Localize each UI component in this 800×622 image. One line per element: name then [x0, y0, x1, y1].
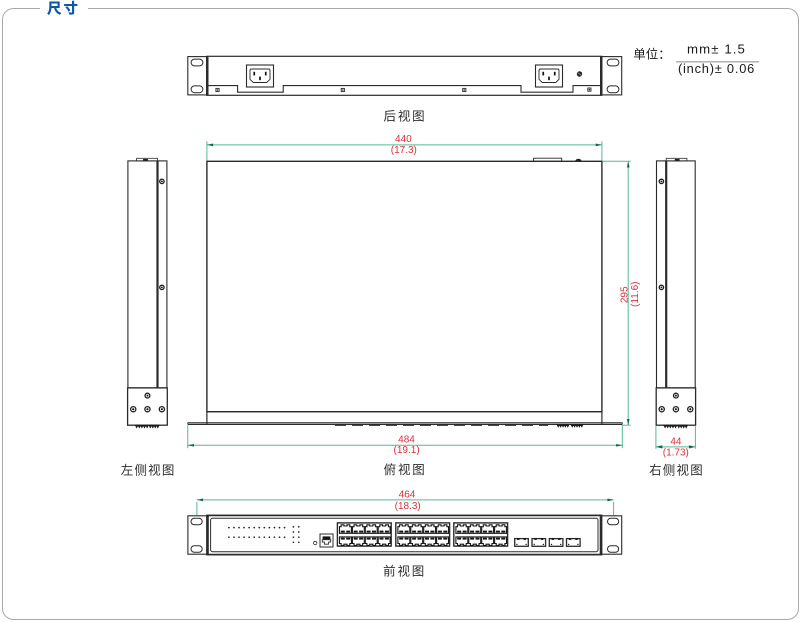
svg-text:尺寸: 尺寸 [48, 0, 81, 16]
svg-text:44: 44 [670, 437, 682, 448]
svg-text:(17.3): (17.3) [391, 145, 417, 156]
svg-text:左侧视图: 左侧视图 [121, 463, 176, 478]
svg-text:单位：: 单位： [633, 46, 671, 61]
svg-text:俯视图: 俯视图 [384, 462, 427, 477]
svg-text:(11.6): (11.6) [630, 282, 641, 307]
svg-text:(1.73): (1.73) [663, 447, 689, 458]
svg-text:(inch)± 0.06: (inch)± 0.06 [678, 61, 755, 76]
svg-text:mm± 1.5: mm± 1.5 [687, 42, 746, 57]
svg-text:440: 440 [395, 134, 412, 145]
svg-text:(19.1): (19.1) [394, 445, 420, 456]
svg-text:(18.3): (18.3) [395, 501, 421, 512]
svg-text:后视图: 后视图 [384, 108, 427, 123]
svg-text:464: 464 [399, 489, 416, 500]
svg-text:右侧视图: 右侧视图 [649, 463, 704, 478]
svg-text:前视图: 前视图 [383, 563, 426, 578]
